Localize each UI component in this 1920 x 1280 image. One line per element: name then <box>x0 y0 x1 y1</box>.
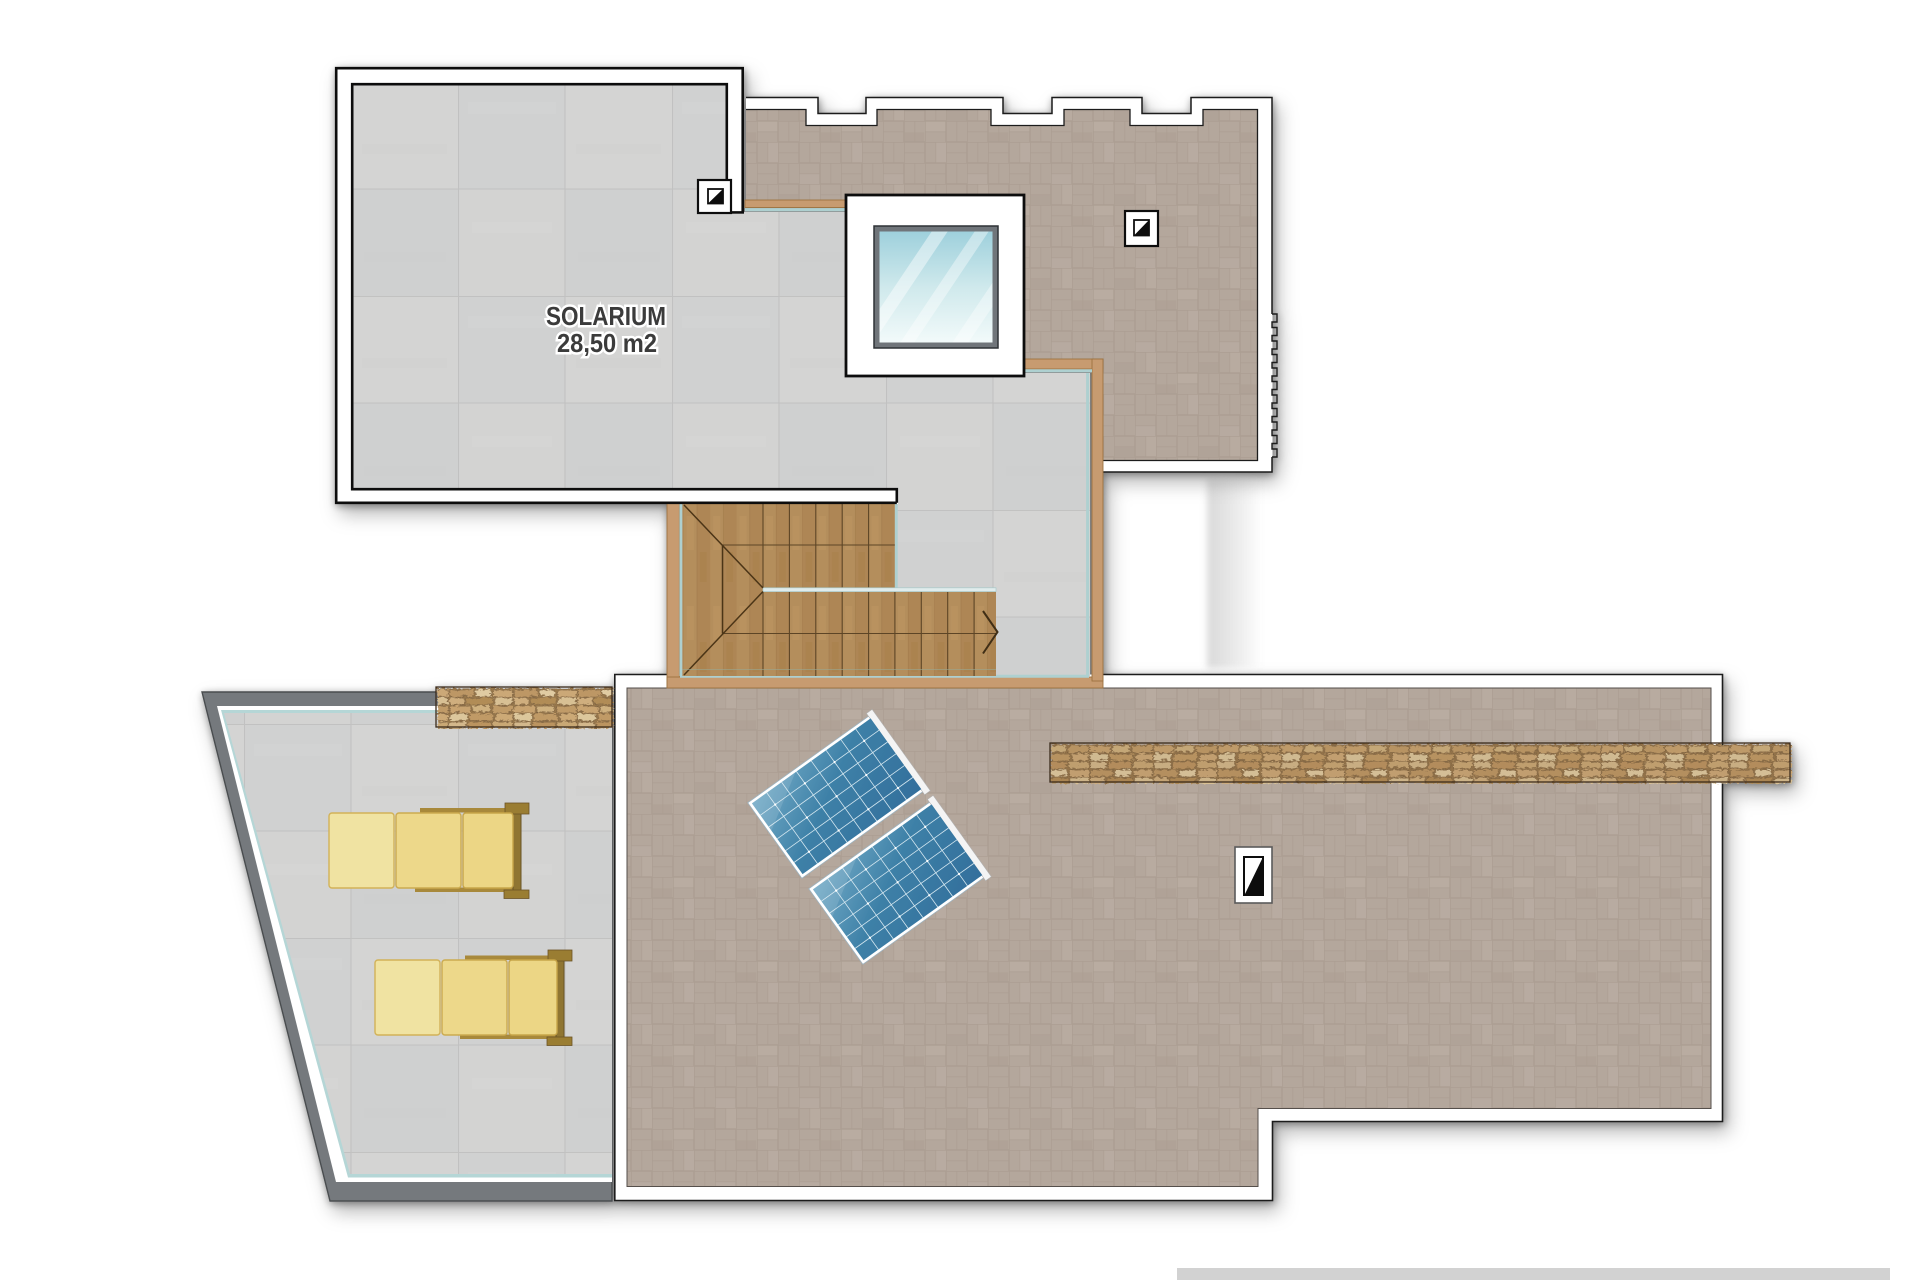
svg-text:28,50 m2: 28,50 m2 <box>557 328 657 358</box>
svg-text:SOLARIUM: SOLARIUM <box>546 301 666 331</box>
